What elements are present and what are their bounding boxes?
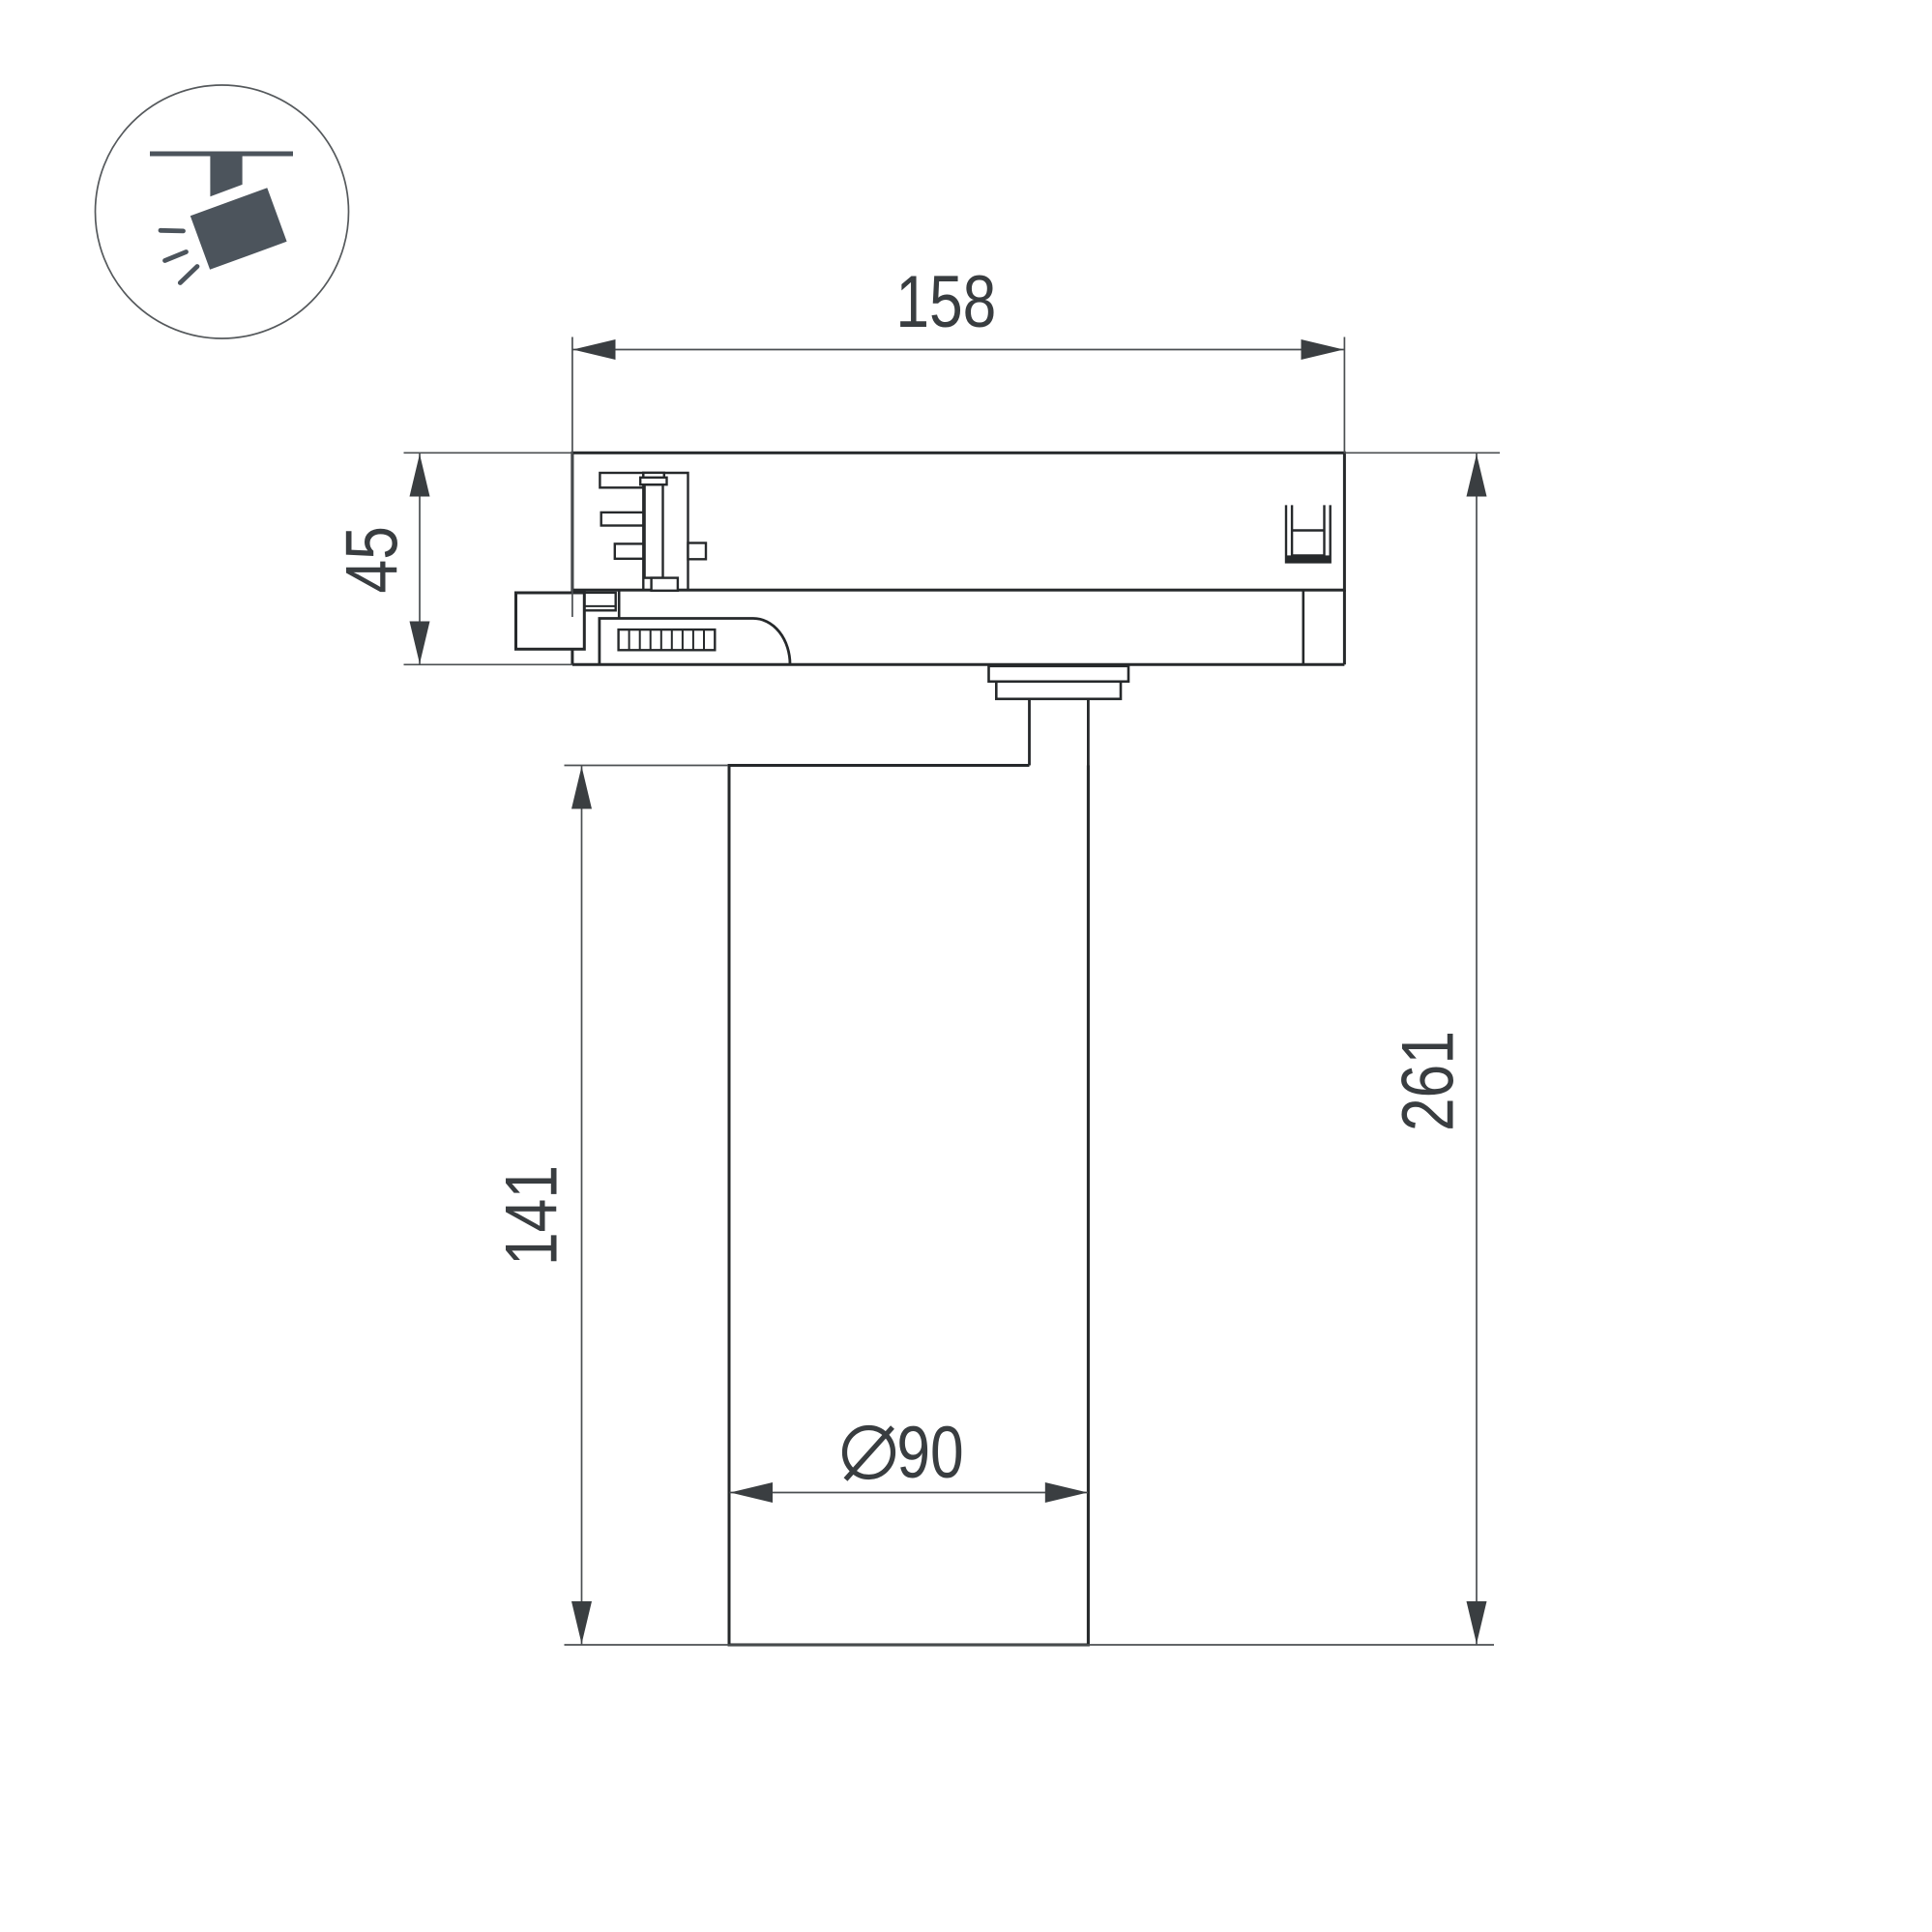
- svg-text:90: 90: [896, 1411, 963, 1493]
- svg-text:45: 45: [331, 526, 413, 593]
- svg-text:141: 141: [490, 1165, 572, 1266]
- svg-text:158: 158: [895, 260, 996, 342]
- svg-text:261: 261: [1387, 1031, 1469, 1131]
